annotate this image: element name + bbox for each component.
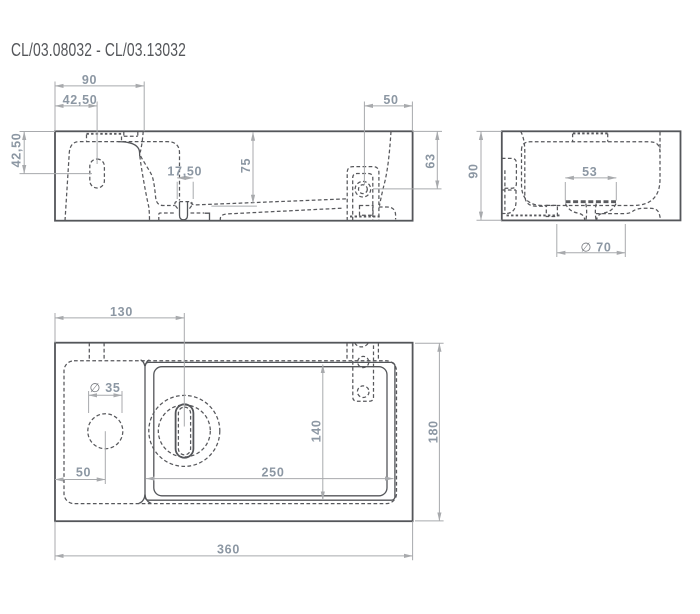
svg-text:42,50: 42,50 (63, 93, 98, 107)
svg-text:63: 63 (424, 153, 438, 168)
svg-text:50: 50 (76, 466, 91, 480)
svg-text:180: 180 (427, 420, 441, 443)
svg-text:130: 130 (110, 305, 133, 319)
svg-text:CL/03.08032 - CL/03.13032: CL/03.08032 - CL/03.13032 (11, 39, 186, 60)
svg-text:42,50: 42,50 (9, 133, 23, 168)
svg-text:17,50: 17,50 (167, 165, 202, 179)
svg-text:90: 90 (467, 163, 481, 178)
svg-text:∅ 70: ∅ 70 (580, 241, 611, 255)
svg-text:250: 250 (262, 466, 285, 480)
svg-text:140: 140 (310, 419, 324, 442)
svg-text:50: 50 (383, 93, 398, 107)
svg-text:∅ 35: ∅ 35 (89, 381, 120, 395)
svg-text:90: 90 (82, 73, 97, 87)
svg-text:75: 75 (239, 158, 253, 173)
svg-text:53: 53 (582, 165, 597, 179)
svg-text:360: 360 (217, 542, 240, 556)
